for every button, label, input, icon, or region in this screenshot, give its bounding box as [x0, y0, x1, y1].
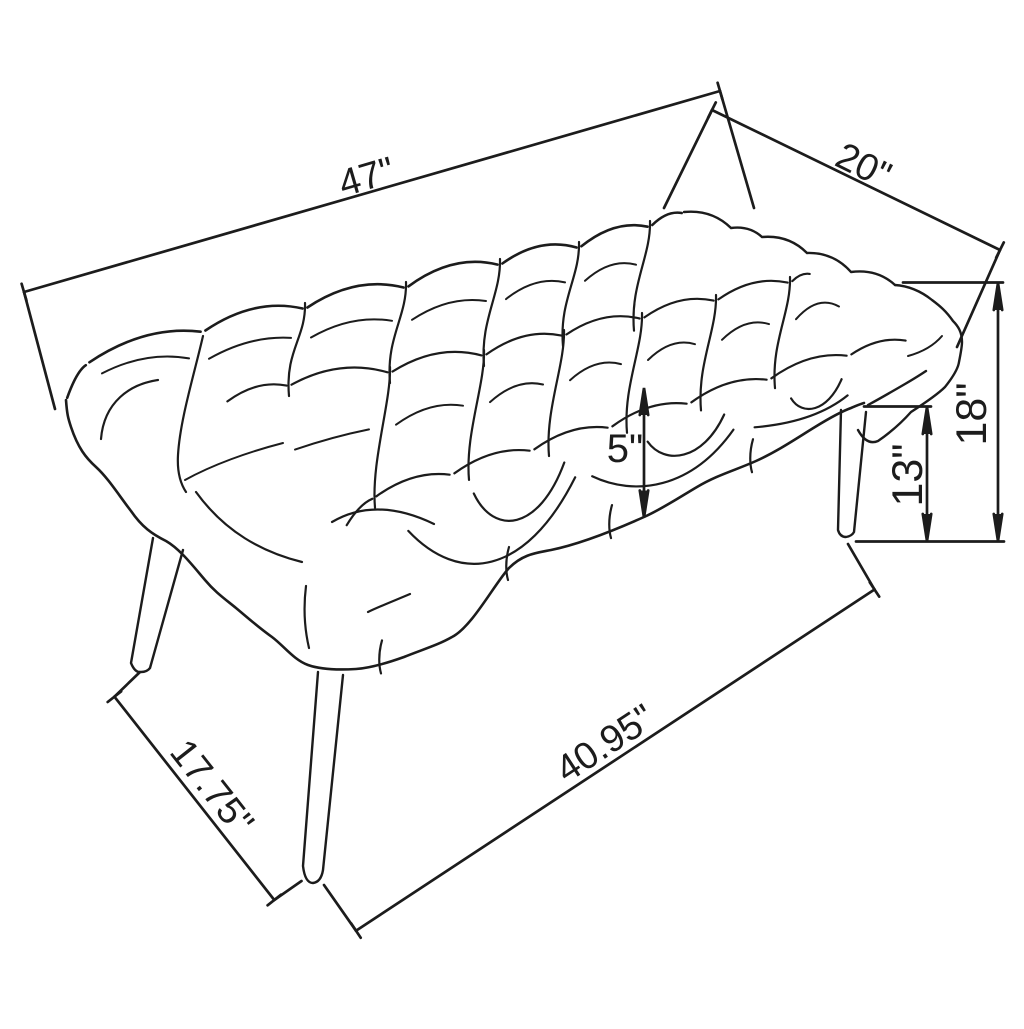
svg-text:5": 5"	[607, 427, 643, 471]
svg-text:13": 13"	[884, 443, 932, 506]
svg-text:18": 18"	[948, 382, 996, 445]
